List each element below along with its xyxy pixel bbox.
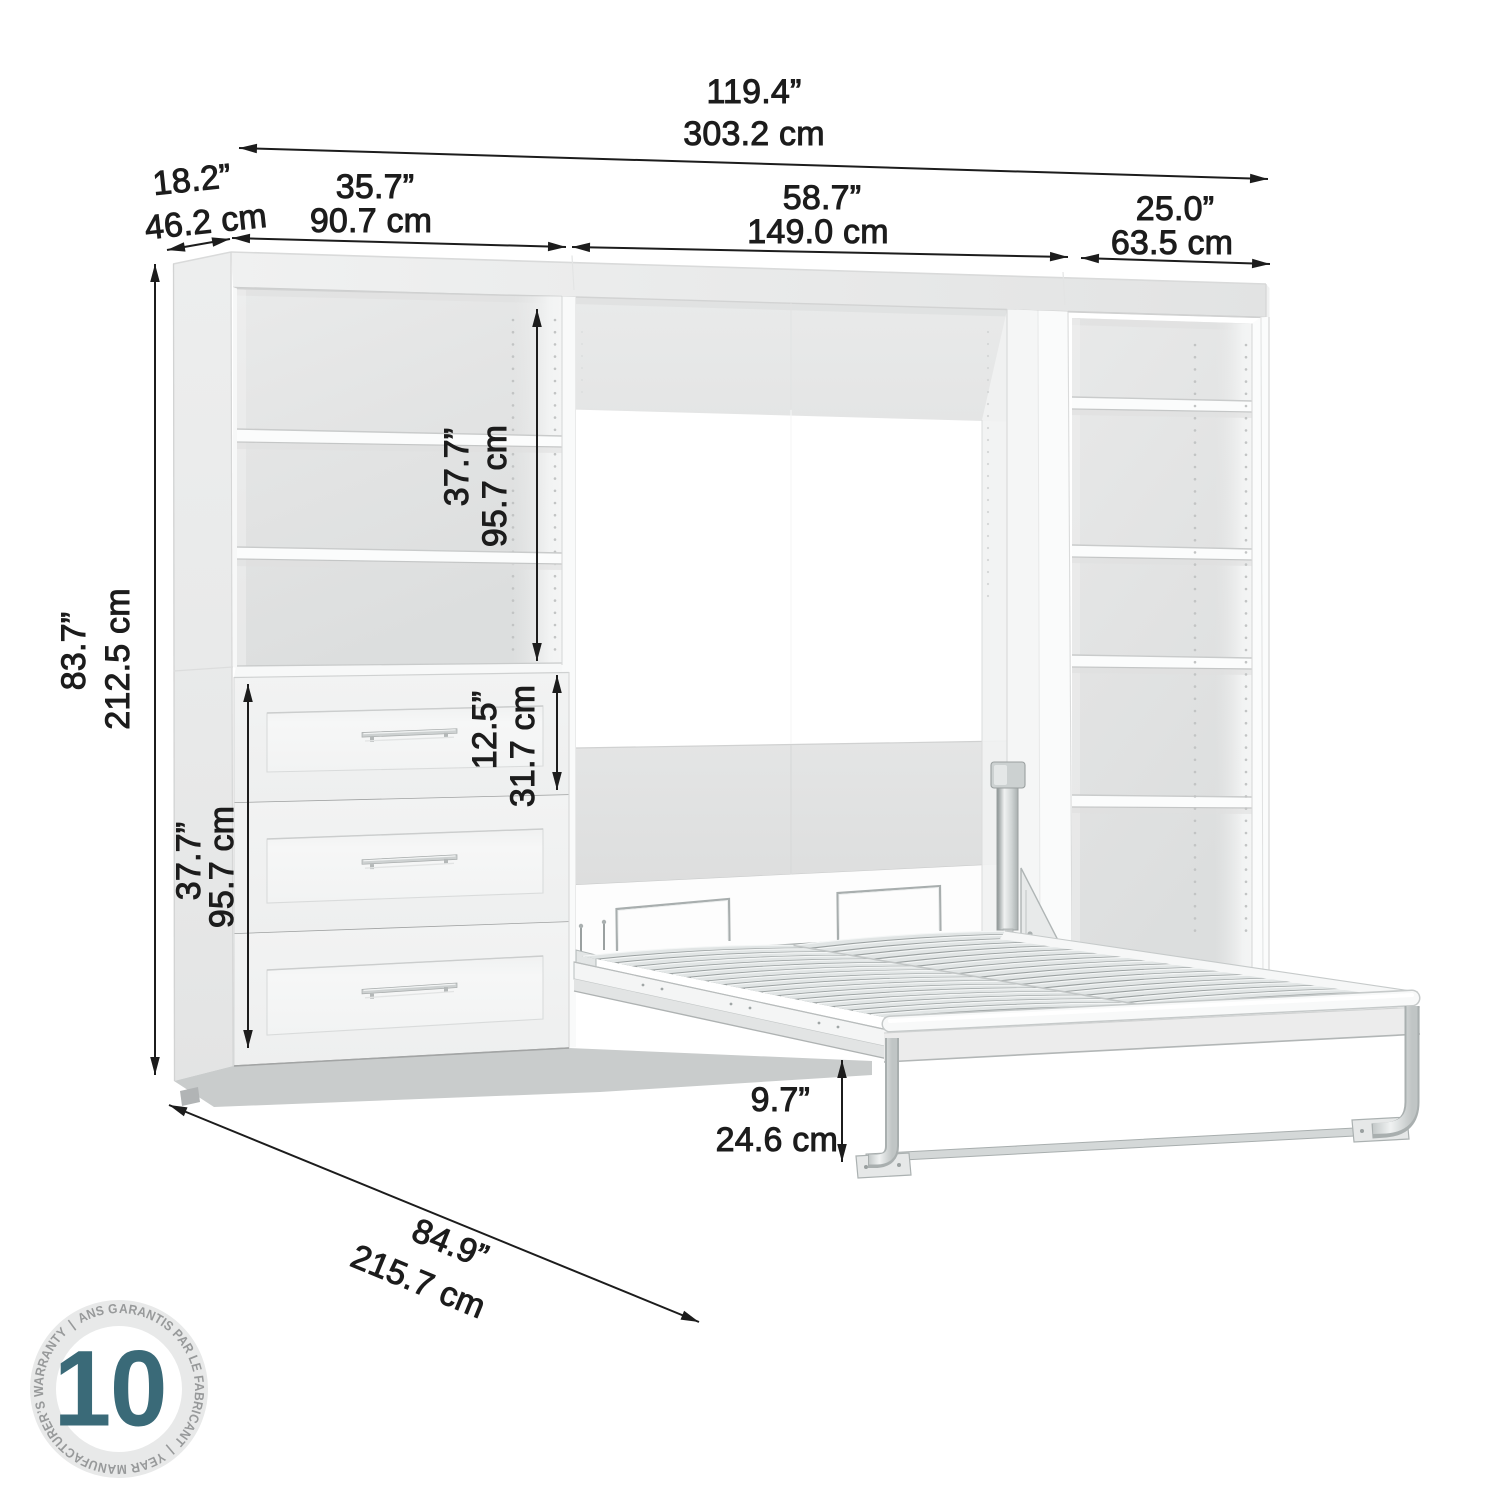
svg-text:35.7”: 35.7” xyxy=(336,168,415,206)
svg-text:12.5”: 12.5” xyxy=(466,691,504,770)
svg-text:149.0 cm: 149.0 cm xyxy=(747,213,888,251)
svg-text:24.6 cm: 24.6 cm xyxy=(716,1121,838,1159)
svg-text:303.2 cm: 303.2 cm xyxy=(683,115,824,153)
svg-text:83.7”: 83.7” xyxy=(55,612,93,691)
svg-text:31.7 cm: 31.7 cm xyxy=(504,685,542,807)
svg-text:37.7”: 37.7” xyxy=(438,428,476,507)
svg-text:25.0”: 25.0” xyxy=(1136,190,1215,228)
svg-text:95.7 cm: 95.7 cm xyxy=(476,425,514,547)
svg-text:58.7”: 58.7” xyxy=(783,179,862,217)
svg-text:9.7”: 9.7” xyxy=(751,1081,810,1119)
svg-text:10: 10 xyxy=(54,1329,166,1449)
svg-text:212.5 cm: 212.5 cm xyxy=(99,588,137,729)
svg-text:119.4”: 119.4” xyxy=(706,73,801,111)
svg-text:63.5 cm: 63.5 cm xyxy=(1111,224,1233,262)
svg-text:95.7 cm: 95.7 cm xyxy=(203,806,241,928)
svg-text:90.7 cm: 90.7 cm xyxy=(310,202,432,240)
